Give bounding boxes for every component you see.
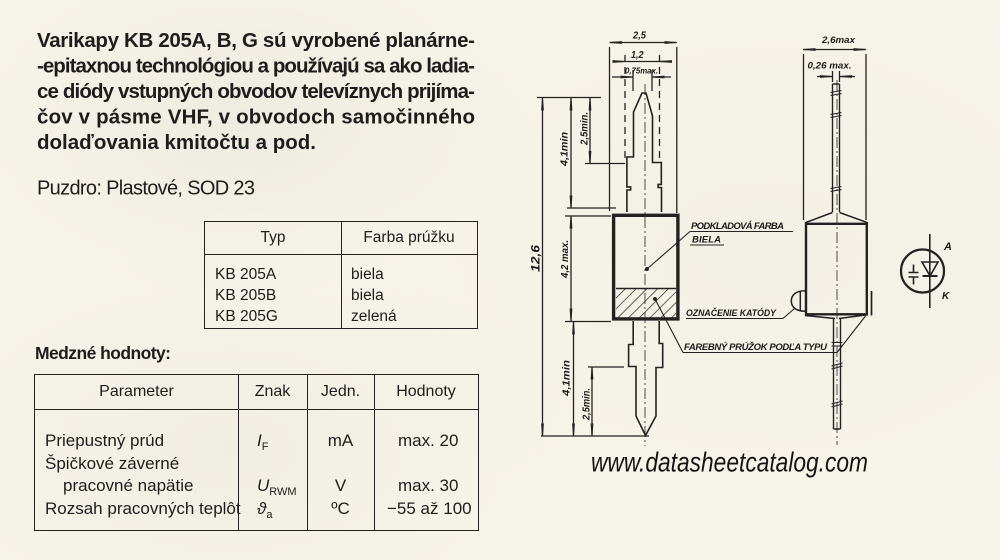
svg-text:čov v pásme VHF, v obvodoch sa: čov v pásme VHF, v obvodoch samočinného	[37, 106, 475, 129]
svg-text:Varikapy KB 205A, B, G sú vyro: Varikapy KB 205A, B, G sú vyrobené planá…	[37, 29, 475, 52]
svg-text:-epitaxnou technológiou a použ: -epitaxnou technológiou a používajú sa a…	[37, 55, 475, 78]
svg-text:ce diódy vstupných obvodov tel: ce diódy vstupných obvodov televíznych p…	[37, 80, 475, 103]
svg-text:dolaďovania kmitočtu a pod.: dolaďovania kmitočtu a pod.	[37, 131, 316, 154]
svg-text:2,6max: 2,6max	[821, 35, 856, 46]
svg-text:Puzdro: Plastové, SOD 23: Puzdro: Plastové, SOD 23	[37, 178, 255, 200]
svg-text:4,2 max.: 4,2 max.	[559, 240, 571, 279]
svg-text:2,5: 2,5	[632, 30, 646, 42]
svg-text:1,2: 1,2	[631, 50, 644, 61]
svg-text:12,6: 12,6	[529, 245, 543, 272]
svg-text:4,1min: 4,1min	[561, 360, 573, 397]
svg-text:2,5min.: 2,5min.	[582, 388, 593, 421]
svg-text:4,1min: 4,1min	[559, 132, 571, 167]
svg-text:0,75max.: 0,75max.	[625, 67, 658, 76]
svg-text:OZNAČENIE KATÓDY: OZNAČENIE KATÓDY	[686, 307, 778, 319]
svg-text:PODKLADOVÁ FARBA: PODKLADOVÁ FARBA	[691, 221, 784, 232]
svg-text:Medzné hodnoty:: Medzné hodnoty:	[35, 343, 171, 363]
svg-text:A: A	[943, 241, 952, 253]
svg-text:www.datasheetcatalog.com: www.datasheetcatalog.com	[591, 447, 868, 478]
svg-text:FAREBNÝ PRÚŽOK PODĽA TYPU: FAREBNÝ PRÚŽOK PODĽA TYPU	[684, 341, 828, 353]
svg-text:BIELA: BIELA	[692, 235, 721, 246]
svg-text:0,26 max.: 0,26 max.	[808, 61, 852, 71]
svg-text:2,5min.: 2,5min.	[580, 112, 591, 146]
svg-text:K: K	[942, 291, 950, 302]
